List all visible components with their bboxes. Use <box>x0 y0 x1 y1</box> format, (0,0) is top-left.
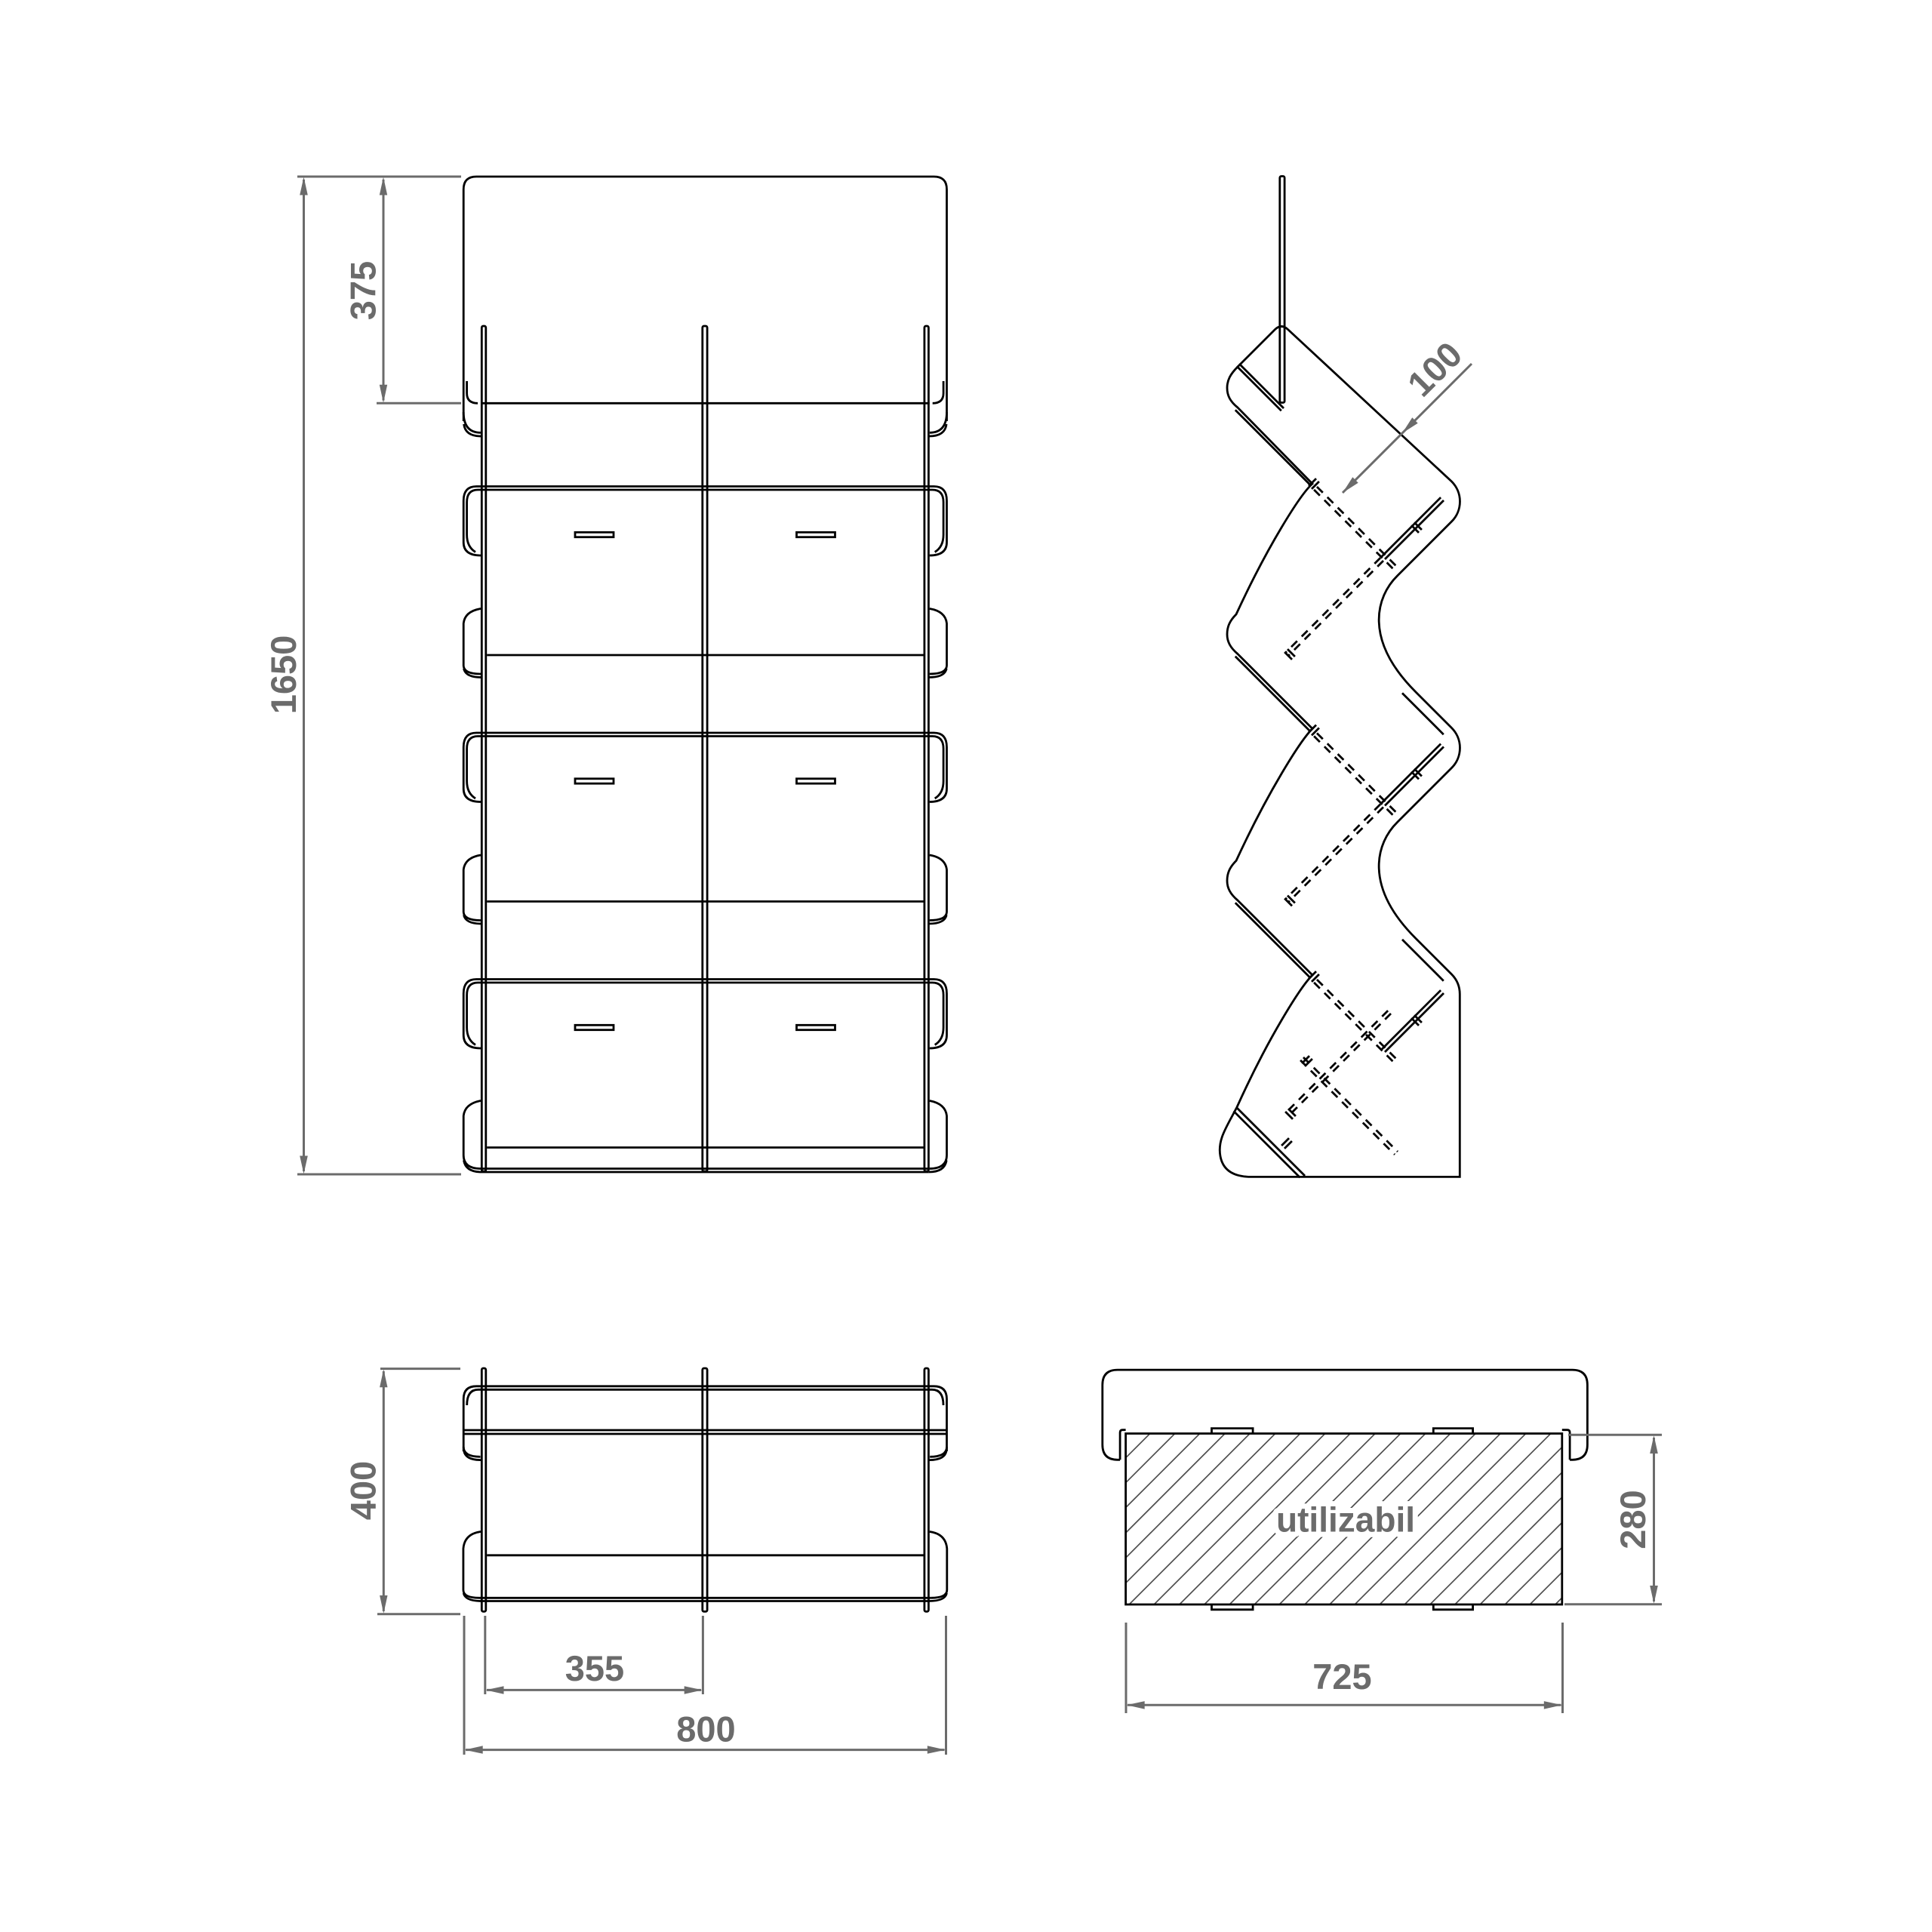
svg-text:375: 375 <box>343 261 383 320</box>
svg-text:355: 355 <box>565 1648 624 1688</box>
svg-text:utilizabil: utilizabil <box>1276 1500 1415 1540</box>
svg-text:400: 400 <box>343 1461 383 1520</box>
svg-text:280: 280 <box>1613 1490 1653 1549</box>
svg-text:1650: 1650 <box>263 635 303 715</box>
svg-text:800: 800 <box>676 1709 735 1749</box>
svg-text:725: 725 <box>1312 1657 1371 1697</box>
